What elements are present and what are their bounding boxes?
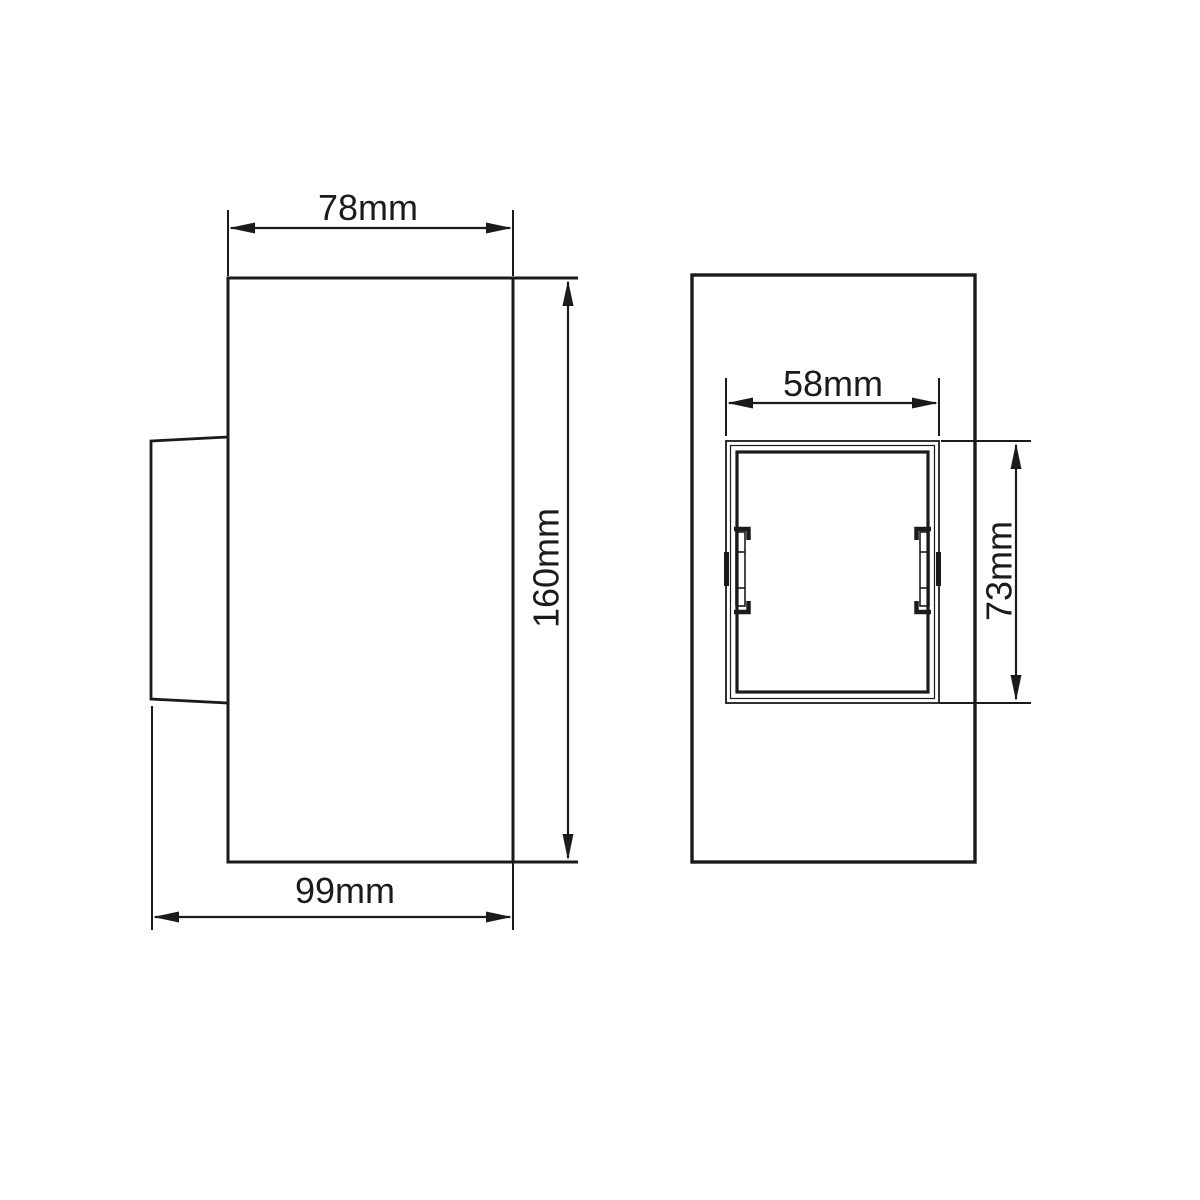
arrowhead-left-icon — [153, 912, 179, 923]
dimension-width-78: 78mm — [228, 187, 513, 276]
side-view-body — [228, 278, 513, 862]
arrowhead-right-icon — [486, 912, 512, 923]
technical-drawing-page: 78mm 160mm 99mm — [0, 0, 1200, 1200]
arrowhead-down-icon — [563, 834, 574, 860]
arrowhead-up-icon — [1011, 443, 1022, 469]
dimension-height-160: 160mm — [513, 278, 578, 862]
dimension-label-height: 160mm — [526, 508, 567, 628]
arrowhead-down-icon — [1011, 675, 1022, 701]
clip-anchor-tick — [936, 552, 941, 586]
arrowhead-left-icon — [229, 223, 255, 234]
dimension-label-opening-width: 58mm — [783, 363, 883, 404]
dimension-drawing: 78mm 160mm 99mm — [0, 0, 1200, 1200]
side-view-mount-plate — [151, 437, 228, 703]
clip-anchor-tick — [724, 552, 729, 586]
opening-recess — [737, 452, 928, 692]
arrowhead-up-icon — [563, 280, 574, 306]
arrowhead-right-icon — [486, 223, 512, 234]
front-view: 58mm 73mm — [692, 275, 1031, 862]
side-view: 78mm 160mm 99mm — [151, 187, 578, 930]
dimension-label-width: 78mm — [318, 187, 418, 228]
dimension-label-depth: 99mm — [295, 870, 395, 911]
dimension-label-opening-height: 73mm — [979, 521, 1020, 621]
